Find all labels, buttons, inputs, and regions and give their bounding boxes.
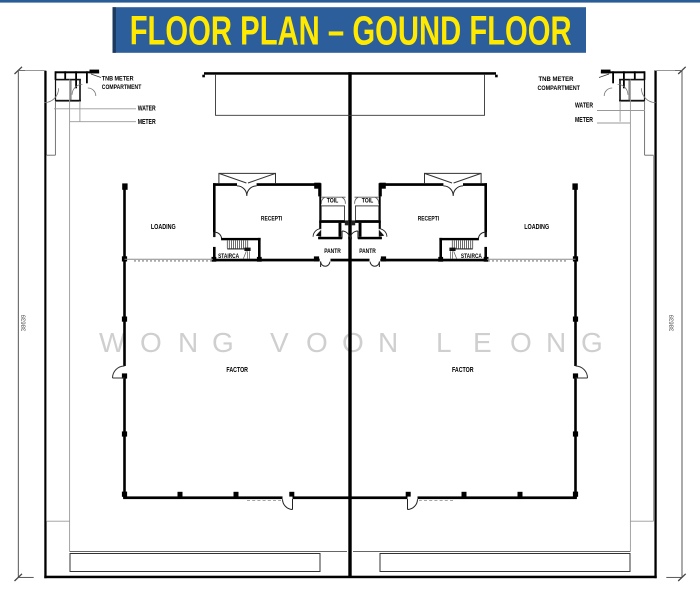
svg-text:G: G <box>212 327 234 358</box>
svg-text:TNB METER: TNB METER <box>102 75 134 82</box>
svg-text:PANTR: PANTR <box>359 248 376 255</box>
svg-text:LOADING: LOADING <box>151 222 176 231</box>
svg-text:O: O <box>510 327 532 358</box>
svg-text:FLOOR PLAN – GOUND FLOOR: FLOOR PLAN – GOUND FLOOR <box>130 8 572 54</box>
svg-text:38639: 38639 <box>670 314 676 331</box>
svg-text:RECEPTI: RECEPTI <box>261 216 283 223</box>
svg-text:E: E <box>473 327 492 358</box>
svg-text:RECEPTI: RECEPTI <box>418 216 440 223</box>
svg-text:STAIRCA: STAIRCA <box>218 253 239 260</box>
svg-text:O: O <box>306 327 328 358</box>
svg-text:COMPARTMENT: COMPARTMENT <box>538 85 581 92</box>
svg-text:O: O <box>140 327 162 358</box>
svg-text:FACTOR: FACTOR <box>452 365 474 374</box>
svg-text:V: V <box>270 327 289 358</box>
svg-text:TOIL: TOIL <box>327 197 339 204</box>
svg-text:N: N <box>378 327 398 358</box>
svg-text:38639: 38639 <box>22 314 28 331</box>
svg-text:TOIL: TOIL <box>362 197 374 204</box>
svg-text:W: W <box>99 327 126 358</box>
svg-text:G: G <box>581 327 603 358</box>
svg-text:FACTOR: FACTOR <box>226 365 248 374</box>
svg-text:L: L <box>436 327 452 358</box>
svg-text:LOADING: LOADING <box>524 222 549 231</box>
svg-text:N: N <box>178 327 198 358</box>
svg-text:COMPARTMENT: COMPARTMENT <box>102 84 142 91</box>
svg-text:N: N <box>546 327 566 358</box>
svg-text:PANTR: PANTR <box>324 248 341 255</box>
svg-text:STAIRCA: STAIRCA <box>461 253 482 260</box>
svg-text:METER: METER <box>575 117 593 124</box>
svg-text:METER: METER <box>138 119 156 126</box>
svg-text:WATER: WATER <box>138 105 156 112</box>
svg-text:O: O <box>342 327 364 358</box>
svg-text:TNB METER: TNB METER <box>539 76 574 83</box>
svg-text:WATER: WATER <box>575 103 593 110</box>
